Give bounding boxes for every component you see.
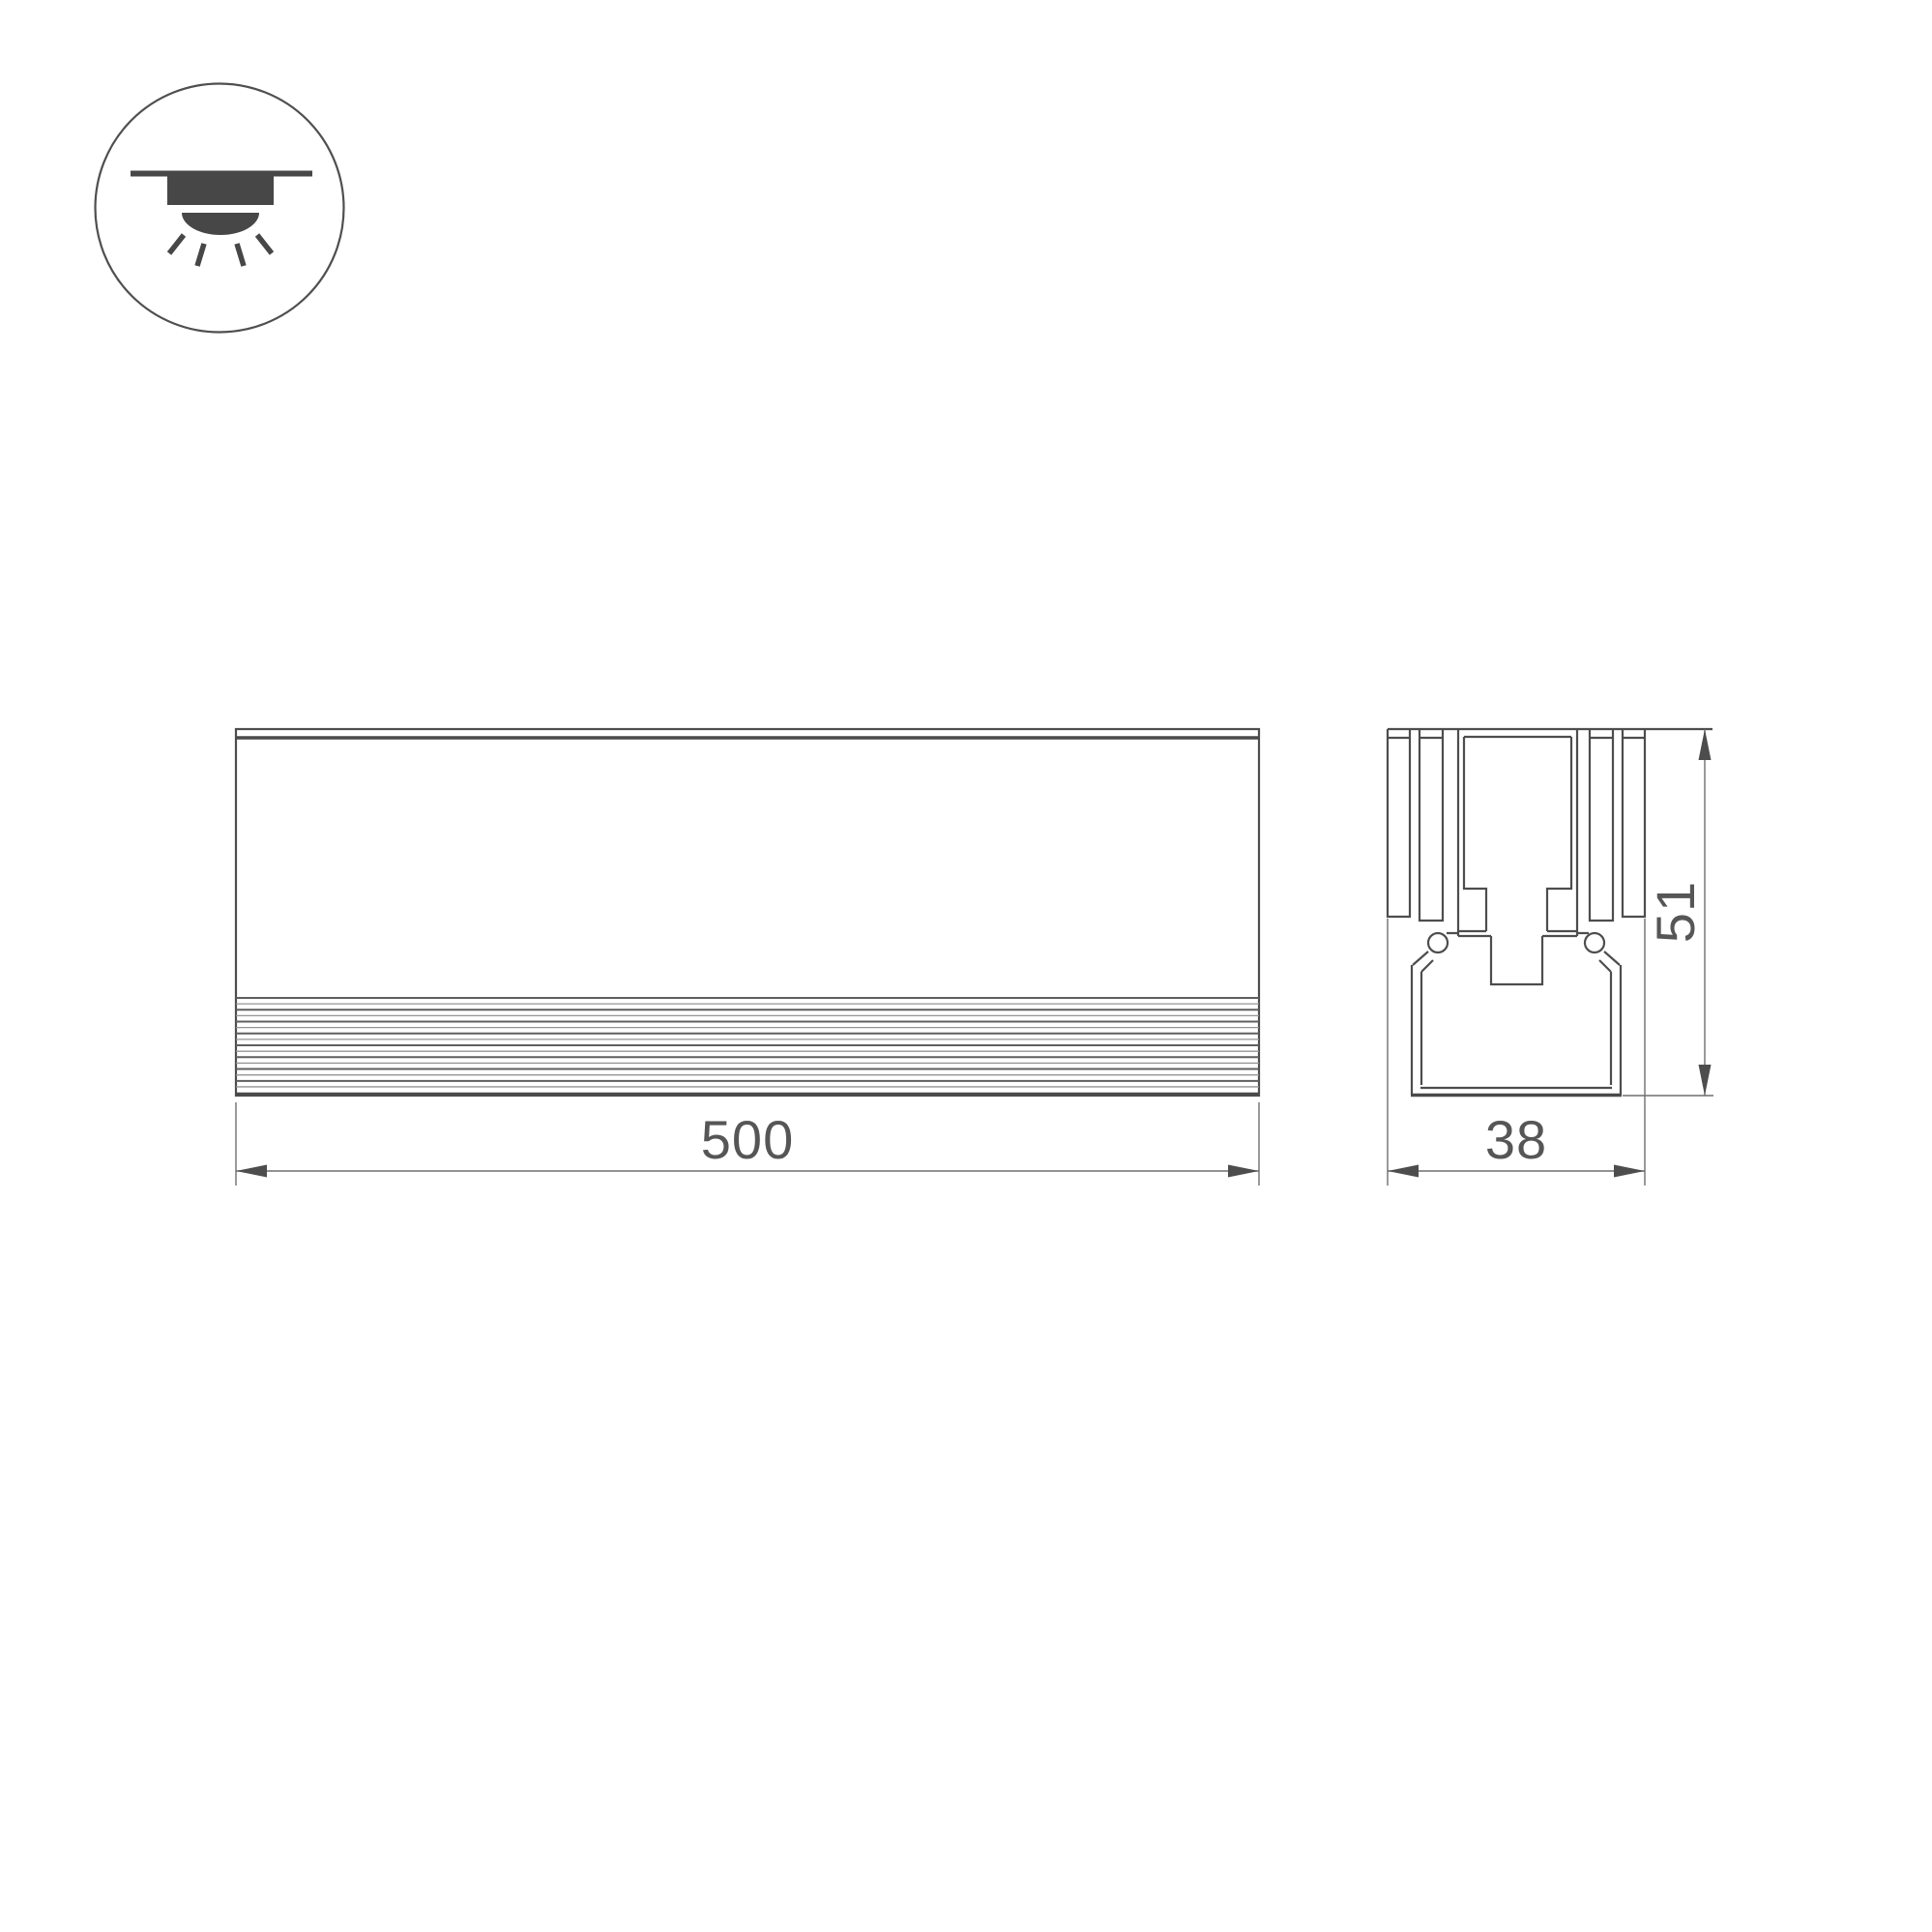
drawing-page: 500 38 51 <box>0 0 1932 1932</box>
dimension-51: 51 <box>1623 729 1713 1096</box>
recessed-housing <box>167 175 274 205</box>
dim-label-length: 500 <box>701 1109 794 1170</box>
drawing-canvas: 500 38 51 <box>0 0 1932 1932</box>
recessed-downlight-icon <box>96 84 344 333</box>
right-screw-boss <box>1585 933 1604 952</box>
dimension-38: 38 <box>1388 919 1645 1186</box>
dim-label-height: 51 <box>1645 881 1706 943</box>
front-outline <box>236 729 1259 1096</box>
dim-label-width: 38 <box>1485 1109 1547 1170</box>
front-view <box>236 729 1259 1096</box>
light-rays <box>169 235 272 266</box>
lamp-dome <box>182 213 259 235</box>
left-screw-boss <box>1428 933 1448 952</box>
icon-circle <box>96 84 344 333</box>
dimension-500: 500 <box>236 1102 1259 1186</box>
